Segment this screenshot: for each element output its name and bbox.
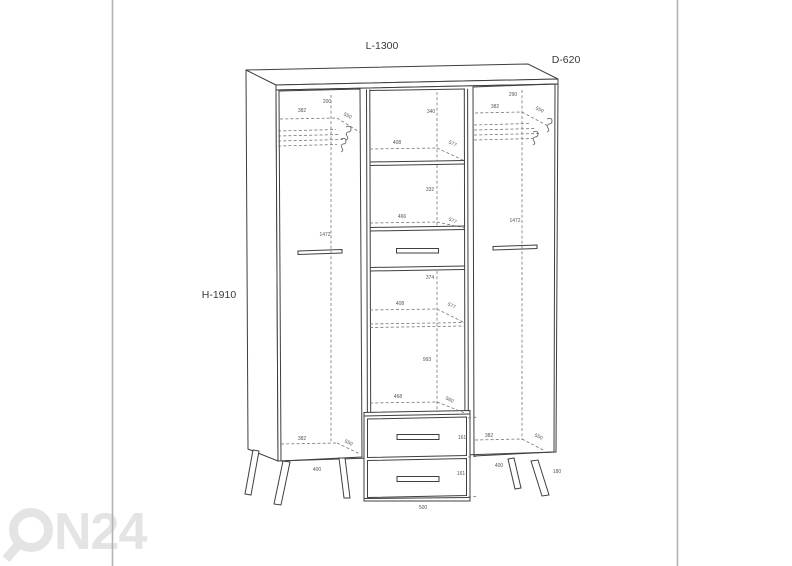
drawer-1-handle[interactable] xyxy=(397,435,439,440)
dim-compartment3-height: 374 xyxy=(426,275,435,281)
dim-drawer-top-width: 468 xyxy=(394,394,403,400)
furniture-assembly-diagram: N24 xyxy=(0,0,792,566)
depth-label: D-620 xyxy=(552,54,581,66)
magnifier-o-icon xyxy=(14,513,49,548)
front-face xyxy=(276,84,558,461)
drawer-2-handle[interactable] xyxy=(397,477,439,482)
dim-left-bottom-width: 382 xyxy=(298,436,307,442)
drawer-unit xyxy=(364,411,470,502)
dim-left-leg-spacing: 400 xyxy=(313,467,322,473)
dim-right-leg-spacing: 400 xyxy=(495,463,504,469)
dim-base-width: 500 xyxy=(419,505,428,511)
dim-shelf2-width: 466 xyxy=(398,214,407,220)
wardrobe-carcass xyxy=(246,64,558,461)
dim-right-rail-width: 382 xyxy=(491,104,500,110)
dim-shelf1-width: 408 xyxy=(393,140,402,146)
watermark-text: N24 xyxy=(54,503,147,561)
height-label: H-1910 xyxy=(202,289,237,301)
wardrobe-technical-drawing: N24 xyxy=(0,0,792,566)
dim-left-rail-width: 382 xyxy=(298,108,307,114)
drawer-tick-2 xyxy=(468,457,478,458)
dim-drawer2-height: 161 xyxy=(457,471,466,477)
watermark-logo: N24 xyxy=(6,503,147,561)
dim-compartment4-height: 993 xyxy=(423,357,432,363)
leg-back-left xyxy=(245,450,259,495)
center-wall-right-inner xyxy=(464,89,465,457)
dim-right-top-clearance: 290 xyxy=(509,92,518,98)
dim-compartment2-height: 332 xyxy=(426,187,435,193)
dim-drawer1-height: 161 xyxy=(458,435,467,441)
left-side-panel xyxy=(246,70,278,461)
leg-center-right xyxy=(508,458,521,489)
dim-right-bottom-width: 382 xyxy=(485,433,494,439)
leg-front-right xyxy=(531,460,549,496)
magnifier-handle-icon xyxy=(6,544,19,559)
leg-center-left xyxy=(339,458,350,498)
dim-left-top-clearance: 200 xyxy=(323,99,332,105)
leg-front-left xyxy=(274,461,290,505)
length-label: L-1300 xyxy=(366,40,399,52)
dim-right-door-height: 1472 xyxy=(509,218,520,224)
dim-right-leg-height: 180 xyxy=(553,469,562,475)
dim-shelf3-width: 408 xyxy=(396,301,405,307)
internal-drawer-handle[interactable] xyxy=(397,249,439,254)
dim-center-top-clearance: 340 xyxy=(427,109,436,115)
drawer-tick-3 xyxy=(468,497,478,498)
dim-left-door-height: 1472 xyxy=(319,232,330,238)
